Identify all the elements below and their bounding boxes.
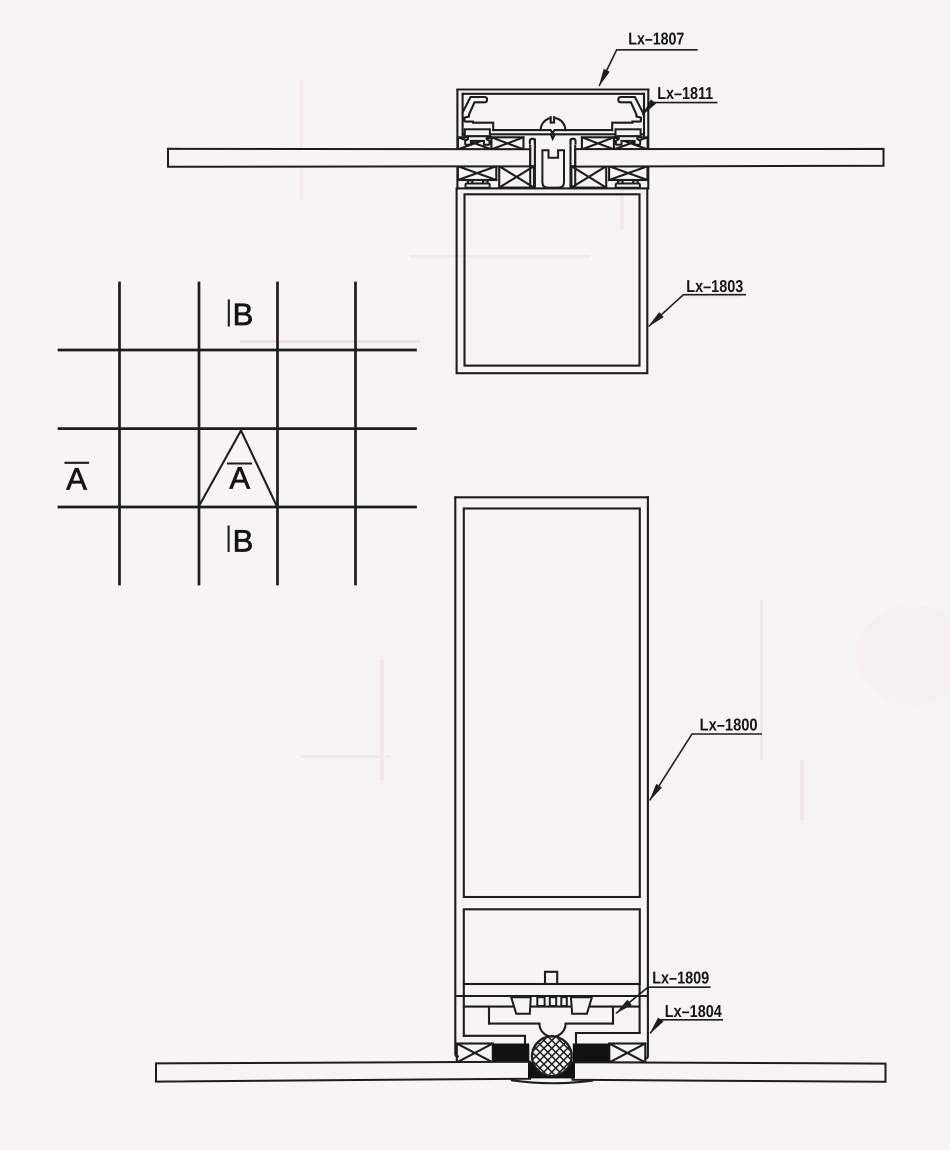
svg-text:A: A: [66, 462, 87, 497]
svg-text:Lx–1800: Lx–1800: [700, 715, 758, 735]
svg-text:A: A: [229, 461, 250, 496]
svg-text:Lx–1803: Lx–1803: [686, 276, 743, 296]
svg-text:Lx–1809: Lx–1809: [652, 968, 709, 988]
svg-text:Lx–1811: Lx–1811: [657, 83, 713, 103]
svg-text:Lx–1804: Lx–1804: [665, 1001, 722, 1021]
svg-text:B: B: [233, 524, 254, 559]
svg-text:B: B: [233, 297, 254, 332]
svg-text:Lx–1807: Lx–1807: [628, 29, 684, 49]
